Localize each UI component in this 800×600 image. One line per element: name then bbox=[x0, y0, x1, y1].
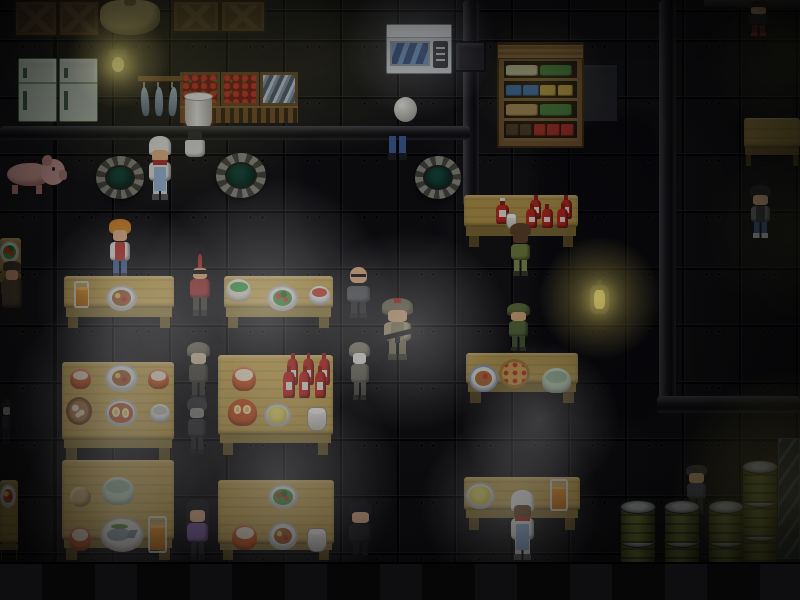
pizza-plate[interactable] bbox=[499, 359, 530, 388]
garnish bbox=[111, 524, 129, 529]
lantern-body bbox=[590, 285, 609, 314]
table-leg bbox=[563, 236, 573, 247]
cabinet-shelf bbox=[504, 81, 577, 101]
shoes bbox=[511, 347, 525, 352]
orange-bowl[interactable] bbox=[148, 369, 169, 389]
wooden-crate[interactable] bbox=[172, 0, 220, 33]
wall-lantern bbox=[588, 280, 611, 317]
face bbox=[751, 7, 765, 13]
hanging-fish bbox=[168, 87, 178, 116]
yellow-plate[interactable] bbox=[465, 482, 495, 509]
cabinet-interior bbox=[504, 61, 577, 141]
legs bbox=[3, 430, 9, 440]
shoes bbox=[388, 354, 407, 360]
bowl-body bbox=[228, 399, 257, 426]
rimmed-plate[interactable] bbox=[469, 365, 498, 392]
bowl-content bbox=[236, 527, 254, 539]
shadow-patch bbox=[300, 140, 440, 250]
fried-eggs-plate[interactable] bbox=[105, 399, 137, 427]
man-black-clothes[interactable] bbox=[345, 500, 376, 560]
fridge-unit[interactable] bbox=[18, 58, 57, 122]
bowl-green-soup[interactable] bbox=[226, 279, 251, 302]
shelf-item[interactable] bbox=[547, 124, 560, 135]
bottle-label bbox=[544, 217, 550, 222]
salad-plate[interactable] bbox=[268, 484, 298, 509]
shelf-item[interactable] bbox=[534, 124, 547, 135]
face bbox=[388, 310, 407, 322]
pig-snout bbox=[59, 170, 67, 179]
kid-olive-clothes[interactable] bbox=[507, 222, 534, 276]
bottle[interactable] bbox=[299, 366, 311, 398]
ketchup-bottles[interactable] bbox=[283, 353, 330, 398]
face bbox=[513, 233, 527, 243]
scarf bbox=[515, 517, 530, 522]
barrel[interactable] bbox=[708, 500, 744, 546]
plate-of-food[interactable] bbox=[106, 285, 137, 311]
table-top bbox=[744, 118, 800, 148]
soup-content bbox=[70, 401, 88, 420]
soldier-walking[interactable] bbox=[347, 340, 372, 400]
torso bbox=[2, 416, 11, 430]
apron bbox=[516, 524, 528, 551]
kitchen-machine[interactable] bbox=[386, 24, 452, 74]
juice-fill bbox=[150, 526, 165, 550]
table-leg bbox=[66, 448, 76, 460]
face bbox=[190, 408, 204, 418]
wooden-crate[interactable] bbox=[58, 0, 100, 37]
table-leg bbox=[1, 550, 3, 560]
dark-counter[interactable] bbox=[578, 64, 618, 122]
apron-cloth bbox=[185, 140, 205, 158]
table-apron bbox=[745, 148, 799, 156]
fridge-handle bbox=[64, 91, 68, 110]
face bbox=[191, 353, 205, 364]
chef-cook[interactable] bbox=[145, 136, 175, 200]
egg-yolk bbox=[243, 405, 251, 414]
table-leg bbox=[563, 392, 573, 403]
orange-bowl[interactable] bbox=[69, 526, 91, 551]
pants-legs bbox=[389, 136, 406, 153]
pit-water bbox=[423, 165, 452, 191]
celadon-bowl[interactable] bbox=[102, 477, 134, 505]
white-cup[interactable] bbox=[306, 407, 328, 431]
torso bbox=[351, 364, 369, 383]
plate-of-food[interactable] bbox=[268, 522, 298, 550]
woman-purple-shirt[interactable] bbox=[183, 498, 212, 560]
table-leg bbox=[16, 550, 18, 560]
juice-fill bbox=[552, 488, 566, 509]
table-leg bbox=[223, 443, 233, 455]
legs bbox=[192, 382, 205, 395]
barrel-lid bbox=[620, 500, 656, 514]
bottle-label bbox=[302, 382, 308, 389]
face bbox=[113, 230, 128, 241]
food bbox=[3, 245, 15, 259]
plate-of-food[interactable] bbox=[105, 364, 138, 392]
torso bbox=[687, 483, 706, 499]
food bbox=[112, 290, 131, 306]
bottle[interactable] bbox=[557, 204, 569, 228]
shelf-item[interactable] bbox=[506, 85, 522, 96]
fish-plate[interactable] bbox=[100, 517, 144, 552]
vest bbox=[115, 242, 125, 261]
white-cup[interactable] bbox=[306, 528, 328, 552]
bowl-content bbox=[312, 288, 327, 297]
torso bbox=[349, 524, 371, 543]
bread-loaf bbox=[70, 487, 91, 507]
hooded-figure[interactable] bbox=[184, 396, 210, 454]
shoes bbox=[350, 313, 366, 318]
white-bowl[interactable] bbox=[150, 404, 170, 423]
food bbox=[475, 371, 491, 386]
table-leg bbox=[793, 155, 798, 166]
shoes bbox=[753, 233, 767, 238]
legs bbox=[514, 260, 527, 272]
shelf-item[interactable] bbox=[520, 124, 533, 135]
food bbox=[3, 489, 13, 503]
shoes bbox=[193, 310, 208, 316]
soldier-green[interactable] bbox=[505, 301, 532, 351]
bottle-label bbox=[317, 382, 323, 389]
juice-surface bbox=[150, 525, 165, 528]
sack-tie bbox=[124, 0, 136, 6]
face bbox=[689, 473, 703, 482]
bowl-content bbox=[72, 529, 88, 541]
juice-surface bbox=[76, 287, 88, 289]
metal-rack[interactable] bbox=[778, 438, 800, 559]
torso bbox=[189, 364, 208, 383]
man-dark-jacket[interactable] bbox=[745, 0, 772, 36]
table-leg bbox=[470, 392, 480, 403]
table-leg bbox=[318, 443, 328, 455]
legs bbox=[191, 541, 205, 555]
torso bbox=[188, 419, 207, 437]
shoes bbox=[190, 554, 205, 560]
table-leg bbox=[159, 448, 169, 460]
bowl-content bbox=[235, 369, 252, 381]
bottle[interactable] bbox=[314, 366, 326, 398]
bottom-dark-band bbox=[0, 562, 800, 600]
shoes bbox=[352, 555, 368, 560]
face bbox=[511, 312, 525, 321]
fridge-unit[interactable] bbox=[59, 58, 98, 122]
scarf bbox=[153, 160, 167, 164]
sunglasses bbox=[351, 274, 366, 277]
torso bbox=[190, 279, 210, 298]
blue-pants[interactable] bbox=[387, 136, 408, 160]
shoes bbox=[513, 271, 527, 276]
bottle[interactable] bbox=[541, 204, 553, 228]
shelf-item[interactable] bbox=[540, 65, 571, 76]
plate-of-food[interactable] bbox=[0, 484, 16, 508]
figure-left-edge-2[interactable] bbox=[0, 398, 13, 444]
pants-shoes bbox=[388, 153, 406, 159]
bottle-label bbox=[529, 217, 535, 222]
food bbox=[469, 486, 491, 505]
barrel-lid bbox=[742, 460, 778, 474]
chef-facing-table[interactable] bbox=[507, 490, 538, 560]
tomato-crate[interactable] bbox=[221, 72, 259, 106]
panel-slots bbox=[436, 45, 445, 61]
table-leg bbox=[469, 236, 479, 247]
shoes bbox=[514, 554, 530, 560]
bowl-content bbox=[153, 406, 167, 415]
face bbox=[753, 195, 767, 205]
fridge-handle bbox=[23, 68, 27, 78]
coat bbox=[2, 277, 22, 307]
pot-rim bbox=[184, 92, 213, 101]
hanging-fish-rack[interactable] bbox=[138, 76, 182, 122]
legs bbox=[113, 260, 126, 273]
face bbox=[3, 407, 10, 415]
shelf-item[interactable] bbox=[506, 104, 537, 115]
cabinet-shelf bbox=[504, 121, 577, 141]
table-apron bbox=[220, 435, 330, 443]
table-leg bbox=[319, 317, 329, 328]
man-gray-jacket[interactable] bbox=[747, 184, 774, 238]
food bbox=[273, 489, 292, 505]
orange-bowl[interactable] bbox=[232, 524, 257, 550]
lantern-core bbox=[594, 290, 605, 308]
legs bbox=[512, 336, 525, 347]
table-leg bbox=[469, 518, 479, 530]
flour-sack[interactable] bbox=[100, 0, 160, 35]
orange-bowl[interactable] bbox=[232, 366, 256, 391]
juice-fill bbox=[76, 288, 88, 306]
hanging-apron[interactable] bbox=[184, 131, 206, 158]
table-leg bbox=[746, 155, 751, 166]
soldier-gray[interactable] bbox=[185, 340, 212, 400]
torso bbox=[347, 286, 369, 303]
shoes bbox=[3, 440, 10, 444]
yellow-plate[interactable] bbox=[264, 403, 291, 427]
rifle-magazine bbox=[395, 337, 399, 343]
punk-mohawk[interactable] bbox=[186, 254, 214, 316]
apron bbox=[154, 167, 166, 191]
bowl-content bbox=[73, 371, 88, 381]
bowl-content bbox=[546, 371, 567, 383]
salad-plate[interactable] bbox=[267, 285, 298, 311]
fridge-handle bbox=[64, 68, 68, 78]
barrel[interactable] bbox=[742, 460, 778, 506]
white-cooking-pot[interactable] bbox=[185, 95, 212, 129]
cabinet-top bbox=[497, 44, 585, 59]
game-viewport bbox=[0, 0, 800, 600]
legs bbox=[191, 437, 203, 450]
torso bbox=[509, 321, 528, 337]
pizza-base bbox=[499, 359, 530, 388]
cooking-pit[interactable] bbox=[216, 153, 266, 198]
sunglasses bbox=[193, 270, 206, 274]
pipe-junction-box bbox=[454, 41, 486, 72]
egg-yolk bbox=[234, 405, 242, 414]
machine-top bbox=[387, 25, 451, 38]
pipe-horizontal-right bbox=[657, 396, 800, 413]
barrel-stack-tall[interactable] bbox=[742, 460, 778, 574]
food bbox=[268, 406, 287, 423]
shoes bbox=[751, 33, 765, 36]
torso bbox=[187, 523, 208, 542]
table-leg bbox=[160, 317, 170, 328]
bowl-red-rim[interactable] bbox=[309, 286, 330, 305]
pig-eye bbox=[52, 167, 55, 171]
pig-ear bbox=[42, 155, 52, 165]
bottle[interactable] bbox=[283, 366, 295, 398]
bottle-label bbox=[560, 217, 566, 222]
legs bbox=[354, 382, 366, 395]
cabinet-shelf bbox=[504, 101, 577, 121]
supply-cabinet[interactable] bbox=[497, 42, 584, 148]
barrel[interactable] bbox=[620, 500, 656, 546]
shoes bbox=[190, 449, 204, 454]
table-leg bbox=[68, 317, 78, 328]
table-top-right[interactable] bbox=[744, 118, 800, 166]
bowl-content bbox=[230, 282, 248, 293]
pig[interactable] bbox=[6, 152, 66, 195]
cooking-pit[interactable] bbox=[96, 156, 144, 199]
bowl-content bbox=[106, 480, 129, 493]
shelf-item[interactable] bbox=[506, 124, 519, 135]
kid-orange-hair[interactable] bbox=[106, 218, 134, 278]
shelf-item[interactable] bbox=[523, 85, 539, 96]
wooden-crate[interactable] bbox=[14, 0, 58, 37]
cabbage[interactable] bbox=[394, 97, 417, 122]
barrel[interactable] bbox=[664, 500, 700, 546]
bottle-label bbox=[286, 382, 292, 389]
torso bbox=[511, 244, 530, 261]
fridge-handle bbox=[23, 91, 27, 110]
cabinet-shelf bbox=[504, 61, 577, 81]
table-leg bbox=[228, 317, 238, 328]
bread[interactable] bbox=[70, 484, 91, 509]
face bbox=[6, 270, 18, 280]
glass-orange-juice[interactable] bbox=[148, 516, 167, 553]
soup-bowl[interactable] bbox=[66, 397, 92, 425]
face bbox=[190, 510, 205, 521]
shelf-item[interactable] bbox=[561, 124, 574, 135]
machine-panel bbox=[433, 41, 448, 68]
shelf-item[interactable] bbox=[540, 85, 556, 96]
pit-water bbox=[225, 162, 257, 189]
bald-sunglasses-man[interactable] bbox=[343, 264, 374, 318]
soldier-with-rifle[interactable] bbox=[379, 296, 416, 360]
shoes bbox=[152, 194, 168, 200]
table-leg bbox=[223, 550, 233, 560]
shelf-item[interactable] bbox=[506, 65, 537, 76]
celadon-bowl[interactable] bbox=[542, 368, 571, 393]
orange-bowl[interactable] bbox=[70, 368, 91, 389]
shelf-item[interactable] bbox=[540, 104, 571, 115]
helmet-band bbox=[394, 298, 401, 303]
hanging-fish bbox=[155, 87, 163, 116]
lamp-bulb bbox=[112, 57, 124, 72]
table-apron bbox=[64, 440, 172, 448]
bowl-content bbox=[151, 371, 166, 380]
refrigerators[interactable] bbox=[18, 58, 98, 122]
hanging-lamp bbox=[107, 44, 129, 74]
face bbox=[353, 353, 366, 364]
legs bbox=[754, 222, 767, 234]
barrel-lid bbox=[708, 500, 744, 514]
pit-water bbox=[105, 165, 136, 191]
pipe-vertical-right bbox=[659, 0, 676, 404]
face bbox=[352, 512, 368, 523]
barrel-lid bbox=[664, 500, 700, 514]
glass-orange-juice[interactable] bbox=[550, 479, 568, 511]
legs bbox=[353, 542, 368, 555]
machine-window bbox=[390, 41, 430, 66]
legs bbox=[193, 297, 206, 311]
shelf-item[interactable] bbox=[558, 85, 574, 96]
pipe-vertical bbox=[463, 0, 479, 206]
egg-bowl[interactable] bbox=[228, 399, 257, 426]
cooking-pit[interactable] bbox=[415, 156, 461, 199]
torso bbox=[749, 14, 768, 25]
cup-rim bbox=[507, 214, 516, 218]
wooden-crate[interactable] bbox=[220, 0, 266, 33]
glass-orange-juice[interactable] bbox=[74, 281, 89, 308]
legs bbox=[351, 302, 366, 314]
pig-legs bbox=[12, 185, 46, 194]
fish-crate[interactable] bbox=[260, 72, 298, 106]
table-leg bbox=[565, 518, 575, 530]
vest bbox=[756, 206, 765, 223]
hanging-fish bbox=[140, 87, 150, 116]
shoes bbox=[353, 395, 366, 400]
trenchcoat-figure[interactable] bbox=[0, 258, 24, 312]
